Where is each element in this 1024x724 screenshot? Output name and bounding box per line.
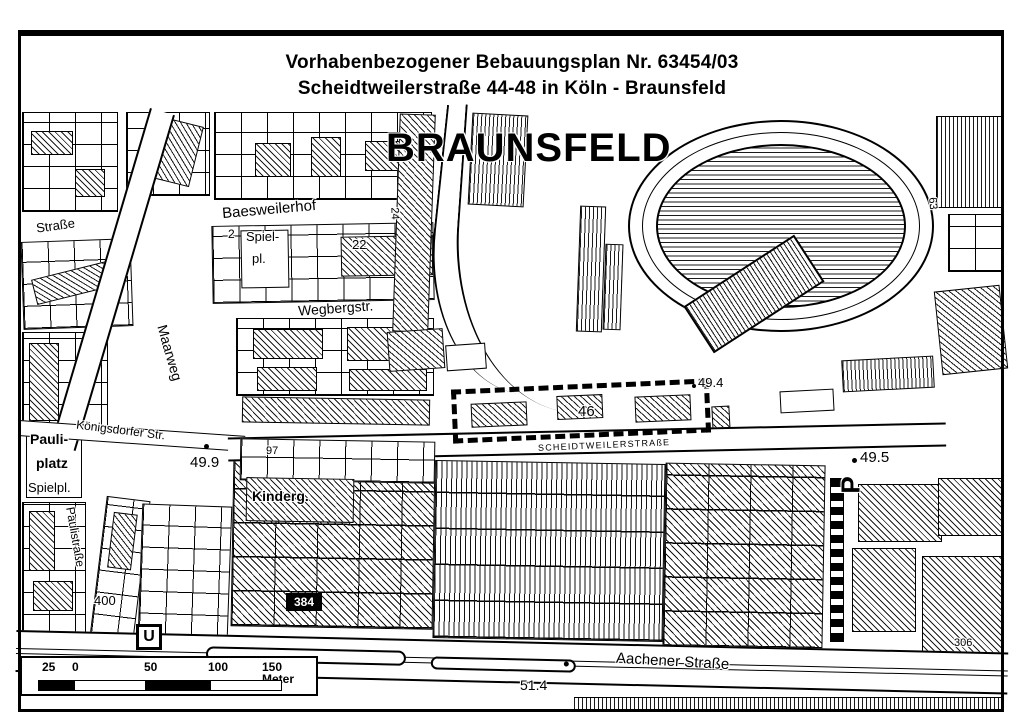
house-number-2: 2 xyxy=(228,228,235,240)
street-label-baesweilerhof: Baesweilerhof xyxy=(222,198,317,221)
plan-title-line2: Scheidtweilerstraße 44-48 in Köln - Brau… xyxy=(20,78,1004,100)
building xyxy=(779,389,834,414)
building xyxy=(841,356,935,393)
garage-row xyxy=(830,478,844,642)
street-label-strasse: Straße xyxy=(35,216,75,234)
building xyxy=(938,478,1004,536)
scale-tick-25: 25 xyxy=(42,661,55,673)
elevation-point xyxy=(852,458,857,463)
scale-tick-100: 100 xyxy=(208,661,228,673)
elevation-point xyxy=(692,384,696,388)
building xyxy=(445,343,487,372)
building xyxy=(255,143,291,177)
parcel-row xyxy=(662,463,825,650)
place-label-pauliplatz-2: platz xyxy=(36,456,68,470)
elevation-499: 49.9 xyxy=(190,455,219,470)
ubahn-station-icon: U xyxy=(136,624,162,650)
plan-map-page: Vorhabenbezogener Bebauungsplan Nr. 6345… xyxy=(0,0,1024,724)
elevation-495: 49.5 xyxy=(860,450,889,465)
building xyxy=(936,116,1004,208)
building xyxy=(107,512,138,571)
map-block xyxy=(138,503,233,639)
street-label-maarweg: Maarweg xyxy=(155,323,184,382)
building xyxy=(603,244,624,331)
building xyxy=(349,369,427,391)
house-number-306: 306 xyxy=(954,638,972,649)
scale-segment xyxy=(211,681,281,690)
building xyxy=(31,131,73,155)
district-label: BRAUNSFELD xyxy=(386,128,672,168)
parking-icon: P xyxy=(838,476,864,493)
scale-tick-0: 0 xyxy=(72,661,79,673)
building xyxy=(33,581,73,611)
plan-title-line1: Vorhabenbezogener Bebauungsplan Nr. 6345… xyxy=(20,52,1004,74)
building xyxy=(75,169,105,197)
parcel-row xyxy=(432,460,665,642)
house-number-384: 384 xyxy=(294,595,314,609)
place-label-spielplatz-nord-1: Spiel- xyxy=(246,230,279,243)
building xyxy=(29,511,55,571)
building xyxy=(29,343,59,421)
building xyxy=(858,484,942,542)
scale-bar-segments xyxy=(38,680,282,691)
house-number-46: 46 xyxy=(578,404,595,419)
place-label-pauliplatz-1: Pauli- xyxy=(30,432,68,446)
place-label-spielplatz-nord-2: pl. xyxy=(252,252,266,265)
ubahn-letter: U xyxy=(143,628,155,646)
scale-segment xyxy=(75,681,145,690)
house-number-97: 97 xyxy=(266,446,278,457)
building xyxy=(387,328,446,372)
building xyxy=(257,367,317,391)
street-label-wegbergstr: Wegbergstr. xyxy=(298,298,374,317)
street-label-aachener: Aachener Straße xyxy=(616,651,730,673)
building xyxy=(253,329,323,359)
building xyxy=(576,206,606,333)
place-label-kindergarten: Kinderg. xyxy=(252,489,309,503)
elevation-494: 49.4 xyxy=(698,376,723,389)
elevation-point xyxy=(564,661,569,666)
map-block xyxy=(948,214,1004,272)
map-block xyxy=(22,112,118,212)
scale-bar: 25 0 50 100 150 Meter xyxy=(20,656,318,696)
house-number-24: 24 xyxy=(388,207,399,220)
scale-segment xyxy=(145,681,211,690)
building xyxy=(634,394,691,422)
elevation-514: 51.4 xyxy=(520,678,547,692)
house-number-22: 22 xyxy=(352,238,366,251)
building xyxy=(934,285,1008,375)
place-label-spielplatz-sued: Spielpl. xyxy=(28,481,71,494)
elevation-point xyxy=(204,444,209,449)
building xyxy=(852,548,916,632)
building-strip xyxy=(574,697,1004,710)
house-number-384-box: 384 xyxy=(286,593,322,611)
tram-platform xyxy=(431,656,576,672)
house-number-63: 63 xyxy=(926,197,938,210)
house-number-400: 400 xyxy=(94,594,116,607)
building xyxy=(471,401,528,427)
scale-segment xyxy=(39,681,75,690)
scale-tick-50: 50 xyxy=(144,661,157,673)
building xyxy=(311,137,341,177)
building-row xyxy=(242,396,430,425)
